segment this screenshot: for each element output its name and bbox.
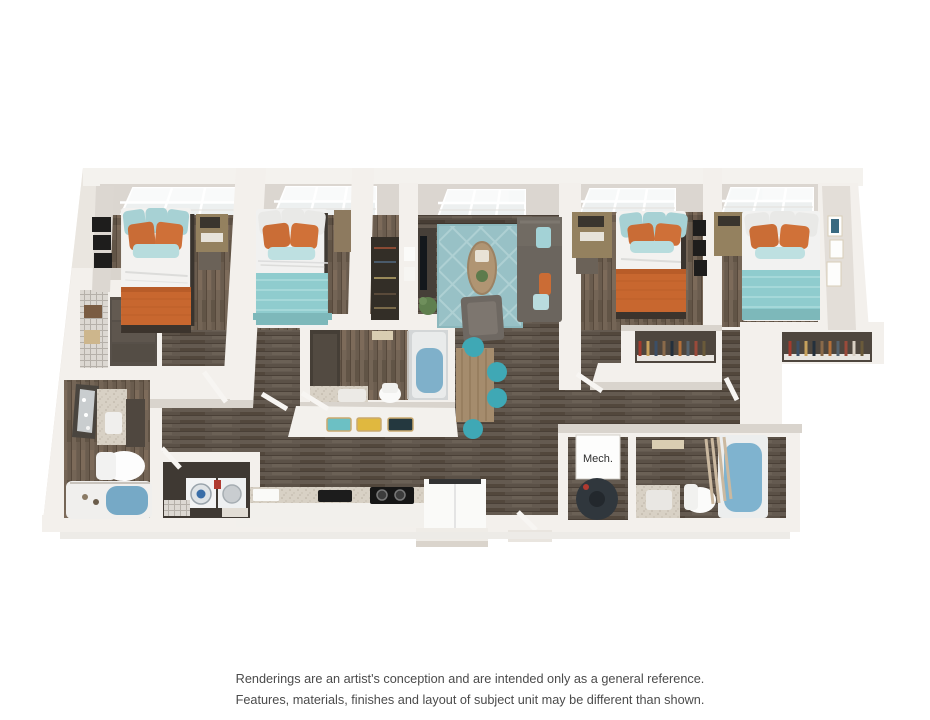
svg-text:Mech.: Mech.: [583, 453, 613, 465]
